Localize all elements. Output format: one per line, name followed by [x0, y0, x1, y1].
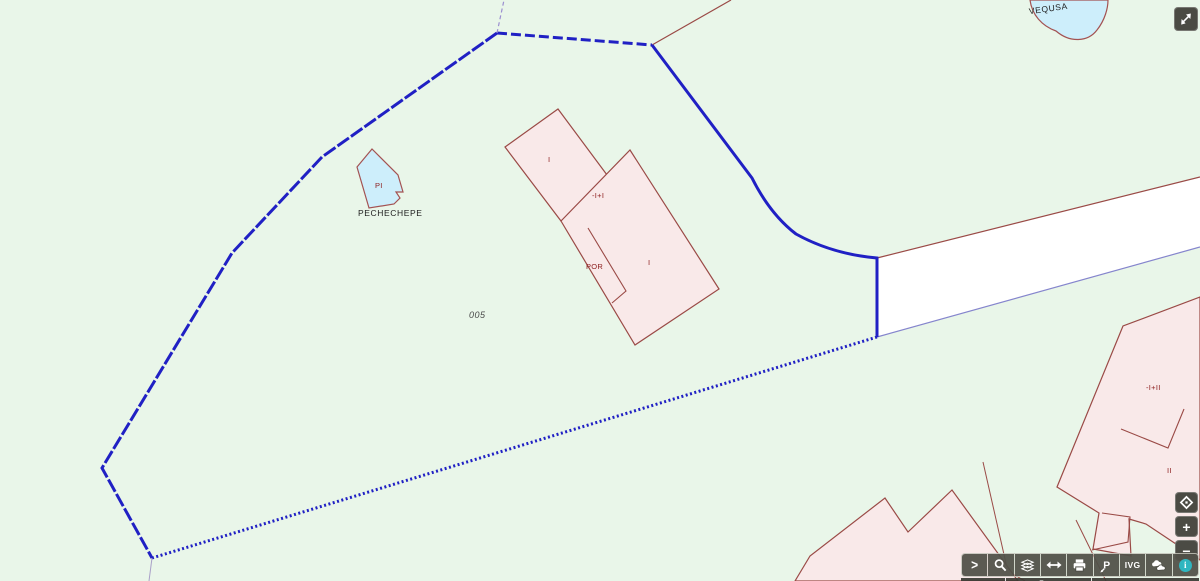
pond-code-label: PI	[375, 181, 383, 190]
parcel-number-label: 005	[469, 310, 486, 320]
map-toolbar: >	[961, 553, 1199, 577]
pin-p-icon: P	[1099, 558, 1114, 573]
map-viewer: VEQUSA PI PECHECHEPE 005 I -I+I POR I -I…	[0, 0, 1200, 581]
parcel-line	[652, 0, 731, 45]
toolbar-measure-button[interactable]	[1041, 554, 1066, 576]
toolbar-search-button[interactable]	[988, 554, 1013, 576]
toolbar-overlay-button[interactable]	[1146, 554, 1171, 576]
boundary-stub-top	[497, 0, 504, 33]
toolbar-expand-button[interactable]: >	[962, 554, 987, 576]
clouds-icon	[1151, 558, 1167, 573]
toolbar-layers-button[interactable]	[1015, 554, 1040, 576]
map-canvas[interactable]: VEQUSA PI PECHECHEPE 005 I -I+I POR I -I…	[0, 0, 1200, 581]
selected-parcel[interactable]	[102, 33, 877, 558]
toolbar-pin-button[interactable]: P	[1094, 554, 1119, 576]
info-icon: i	[1179, 559, 1192, 572]
road-parcel[interactable]	[877, 177, 1200, 337]
zoom-in-button[interactable]: +	[1175, 516, 1198, 537]
building-label: I	[648, 258, 650, 267]
boundary-stub-bottom	[149, 558, 152, 581]
building-label: II	[1167, 466, 1172, 475]
pan-button[interactable]	[1175, 492, 1198, 513]
ivg-label: IVG	[1125, 560, 1141, 570]
fullscreen-icon	[1178, 11, 1194, 27]
search-icon	[993, 558, 1008, 573]
toolbar-ivg-button[interactable]: IVG	[1120, 554, 1145, 576]
building-label: -I+II	[1146, 383, 1161, 392]
building-label: -I+I	[592, 191, 604, 200]
chevron-right-icon: >	[971, 557, 978, 573]
toolbar-info-button[interactable]: i	[1173, 554, 1198, 576]
fullscreen-button[interactable]	[1174, 7, 1198, 31]
pan-icon	[1179, 495, 1194, 510]
measure-arrows-icon	[1046, 558, 1062, 572]
plus-icon: +	[1182, 519, 1190, 535]
pond-name-label: PECHECHEPE	[358, 208, 423, 218]
building-label: POR	[586, 262, 603, 271]
layers-icon	[1020, 558, 1035, 573]
print-icon	[1072, 558, 1087, 573]
toolbar-print-button[interactable]	[1067, 554, 1092, 576]
building-label: I	[548, 155, 550, 164]
